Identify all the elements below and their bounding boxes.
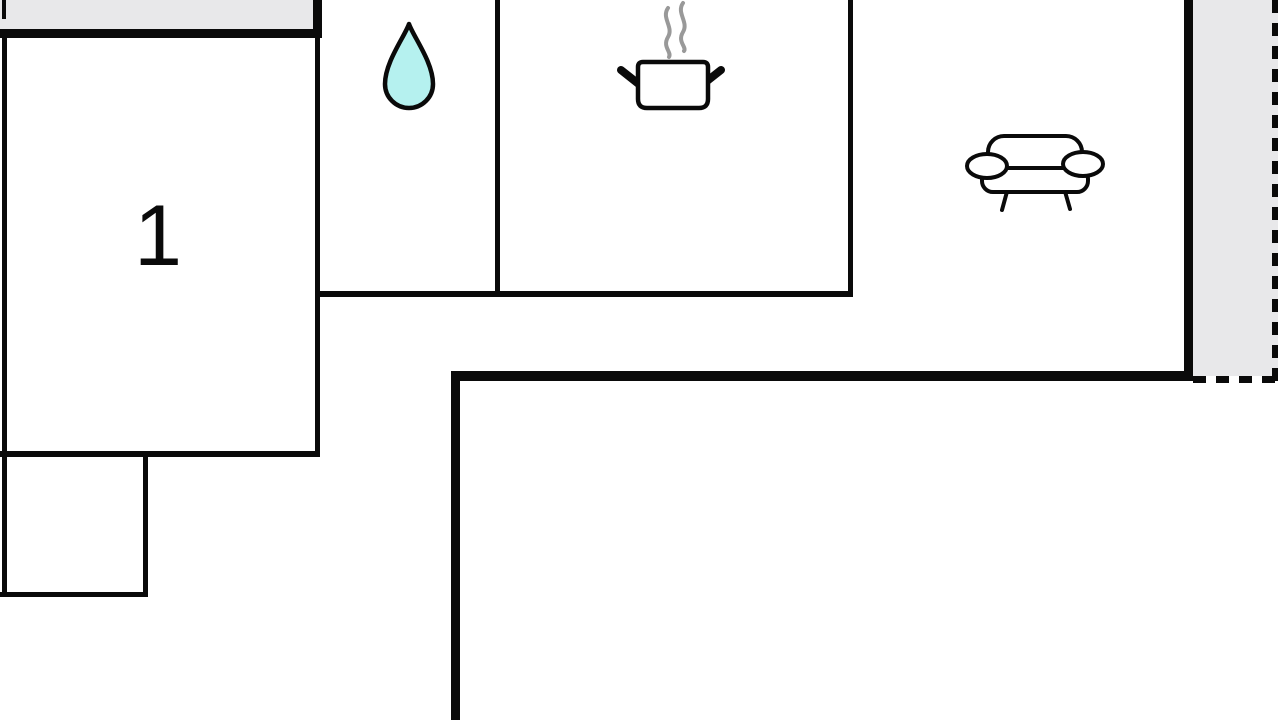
bedroom-east-wall <box>315 0 320 457</box>
closet-east-wall <box>143 451 148 597</box>
terrace-area-right <box>1193 0 1278 376</box>
sofa-icon <box>958 126 1114 218</box>
cooking-pot-icon <box>606 0 736 112</box>
steam-line-left-icon <box>666 8 670 57</box>
pot-body <box>638 62 708 108</box>
main-south-wall-thick <box>451 371 1193 381</box>
room-1-label: 1 <box>108 186 208 286</box>
bathroom-kitchen-wall <box>495 0 500 296</box>
hallway-north-wall <box>315 291 853 297</box>
floor-plan: 1 <box>0 0 1280 720</box>
water-drop-icon <box>378 20 440 116</box>
kitchen-east-wall <box>848 0 853 297</box>
west-wall <box>2 29 7 597</box>
steam-line-right-icon <box>681 3 685 51</box>
bedroom-south-wall <box>0 451 320 457</box>
sofa-armrest-right <box>1063 152 1103 176</box>
terrace-dashed-border-bottom <box>1193 376 1280 383</box>
closet-south-wall <box>0 592 148 597</box>
balcony-south-wall <box>0 29 322 38</box>
terrace-dashed-border-right <box>1272 0 1278 383</box>
wall-stub-top-left <box>2 0 6 19</box>
water-drop-shape <box>385 24 433 108</box>
balcony-area-top <box>0 0 313 29</box>
lower-west-wall-thick <box>451 371 460 720</box>
sofa-armrest-left <box>967 154 1007 178</box>
living-east-wall-thick <box>1184 0 1193 381</box>
